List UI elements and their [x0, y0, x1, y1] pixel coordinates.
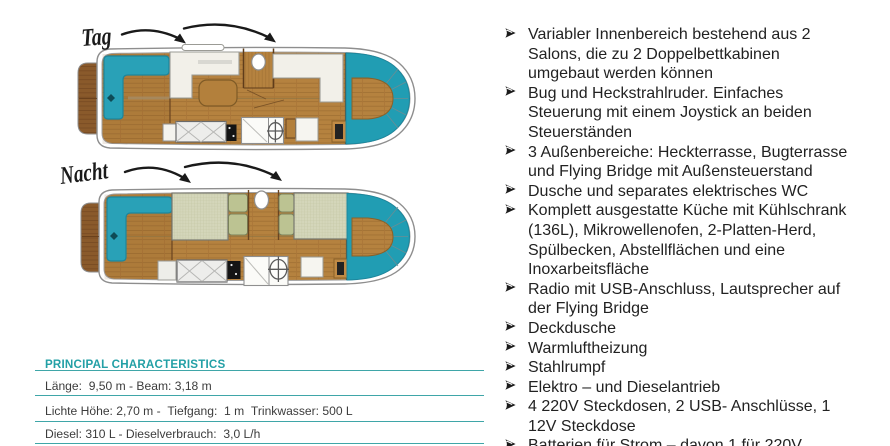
svg-text:Nacht: Nacht	[58, 157, 110, 190]
svg-text:Tag: Tag	[81, 23, 113, 52]
